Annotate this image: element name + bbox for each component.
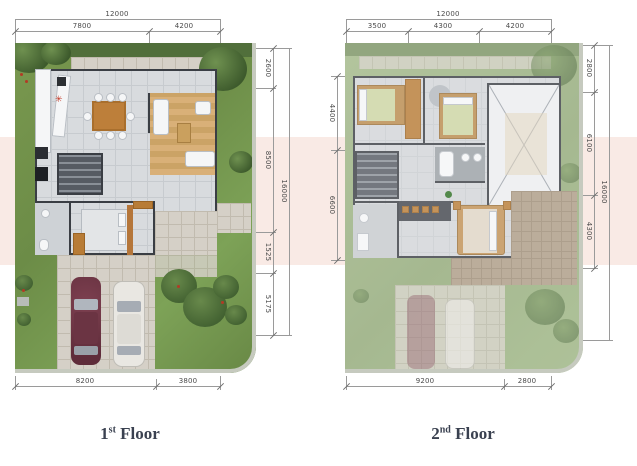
nightstand [453, 201, 461, 210]
flower [20, 73, 23, 76]
car-maroon [71, 277, 101, 365]
dim-label: 16000 [600, 180, 608, 203]
dim-label: 4400 [328, 104, 336, 123]
side-pad [217, 203, 251, 233]
porch [155, 211, 217, 255]
bed-headboard [127, 205, 133, 255]
coffee-table [177, 123, 191, 143]
dimension-line [337, 76, 338, 260]
dimension-line [346, 19, 551, 20]
dim-label: 9200 [416, 377, 435, 385]
dim-label: 6600 [328, 196, 336, 215]
sink [473, 153, 482, 162]
extension-line [551, 376, 552, 390]
floor1-title-word: Floor [120, 424, 160, 443]
car-windshield [74, 299, 98, 310]
floor1-title: 1st Floor [100, 424, 160, 444]
flower [177, 285, 180, 288]
roof-terrace [451, 258, 577, 285]
wall [148, 93, 150, 133]
closet-box [422, 206, 429, 213]
chair [118, 131, 127, 140]
pillow [359, 89, 367, 121]
extension-line [583, 195, 598, 196]
pillow [443, 97, 473, 105]
flower [22, 289, 25, 292]
dim-label: 16000 [280, 179, 288, 202]
wall [69, 201, 71, 255]
wardrobe [405, 79, 421, 139]
bush [213, 275, 239, 299]
sofa [153, 99, 169, 135]
extension-line [583, 268, 598, 269]
wall [353, 143, 485, 145]
closet-box [432, 206, 439, 213]
dimension-line [346, 31, 551, 32]
bathtub [439, 151, 454, 177]
extension-line [15, 376, 16, 390]
fridge [35, 147, 48, 159]
dining-table [92, 101, 126, 131]
car-white [113, 281, 145, 367]
dim-label: 5175 [264, 295, 272, 314]
dim-label: 12000 [105, 10, 128, 18]
dimension-line [289, 48, 290, 335]
chair [94, 93, 103, 102]
flower [221, 301, 224, 304]
extension-line [408, 31, 409, 43]
dim-label: 7800 [73, 22, 92, 30]
dimension-line [346, 386, 551, 387]
floor2-title-word: Floor [455, 424, 495, 443]
tree [229, 151, 253, 173]
wall [423, 76, 425, 143]
floor1-title-number: 1 [100, 424, 109, 443]
kitchen-counter [35, 69, 51, 153]
sink [41, 209, 50, 218]
toilet [39, 239, 49, 251]
dimension-line [594, 45, 595, 268]
extension-line [583, 92, 598, 93]
pillow [118, 231, 126, 245]
tree [41, 43, 71, 65]
closet-box [412, 206, 419, 213]
sofa [185, 151, 215, 167]
bush [353, 289, 369, 303]
car-white-faded [445, 299, 475, 369]
plant [445, 191, 452, 198]
extension-line [220, 376, 221, 390]
dim-label: 1525 [264, 243, 272, 262]
closet-box [402, 206, 409, 213]
dim-label: 2600 [264, 59, 272, 78]
staircase [57, 153, 103, 195]
floor2-title: 2nd Floor [431, 424, 495, 444]
garden-path [359, 56, 551, 69]
pillow [118, 213, 126, 227]
dim-label: 8500 [264, 151, 272, 170]
wall [435, 181, 485, 183]
extension-line [346, 376, 347, 390]
faded-rug [505, 113, 547, 175]
armchair [195, 101, 211, 115]
chair [106, 93, 115, 102]
dim-label: 4300 [585, 222, 593, 241]
cooktop [57, 77, 66, 86]
chair [94, 131, 103, 140]
sink [461, 153, 470, 162]
extension-line [583, 340, 613, 341]
dimension-line [609, 45, 610, 340]
car-roof [74, 312, 98, 344]
bush [225, 305, 247, 325]
chair [83, 112, 92, 121]
stove [35, 167, 48, 181]
sink [359, 213, 369, 223]
floorplan-sheet: ✳ [0, 0, 637, 466]
car-maroon-faded [407, 295, 435, 369]
chair [106, 131, 115, 140]
shower [357, 233, 369, 251]
utility-pad [17, 297, 29, 306]
dimension-line [15, 386, 220, 387]
dim-label: 4200 [175, 22, 194, 30]
extension-line [479, 31, 480, 43]
floor2-title-number: 2 [431, 424, 440, 443]
dim-label: 8200 [76, 377, 95, 385]
car-roof [117, 314, 141, 344]
floor2-title-suffix: nd [440, 424, 451, 435]
dimension-line [15, 31, 220, 32]
dimension-line [273, 48, 274, 335]
dim-label: 4300 [434, 22, 453, 30]
bush [17, 313, 31, 326]
bush [553, 319, 579, 343]
cabinet [133, 201, 153, 209]
car-windshield [117, 301, 141, 312]
pillow [489, 211, 497, 251]
dim-label: 3500 [368, 22, 387, 30]
extension-line [149, 31, 150, 43]
chair [126, 112, 135, 121]
car-rear-window [74, 346, 98, 355]
dim-label: 2800 [585, 59, 593, 78]
tree [559, 163, 581, 183]
dim-label: 3800 [179, 377, 198, 385]
dimension-line [15, 19, 220, 20]
dim-label: 2800 [518, 377, 537, 385]
dim-label: 4200 [506, 22, 525, 30]
extension-line [583, 45, 613, 46]
dim-label: 12000 [436, 10, 459, 18]
wardrobe [73, 233, 85, 255]
floor1-plan: ✳ [15, 43, 256, 373]
floor2-plan [345, 43, 583, 373]
flower [25, 80, 28, 83]
floor1-title-suffix: st [109, 424, 116, 435]
dim-label: 6100 [585, 134, 593, 153]
chair [118, 93, 127, 102]
void-double-height [487, 83, 561, 207]
staircase [355, 151, 399, 199]
car-rear-window [117, 346, 141, 355]
nightstand [503, 201, 511, 210]
kitchen-marker: ✳ [55, 95, 63, 105]
